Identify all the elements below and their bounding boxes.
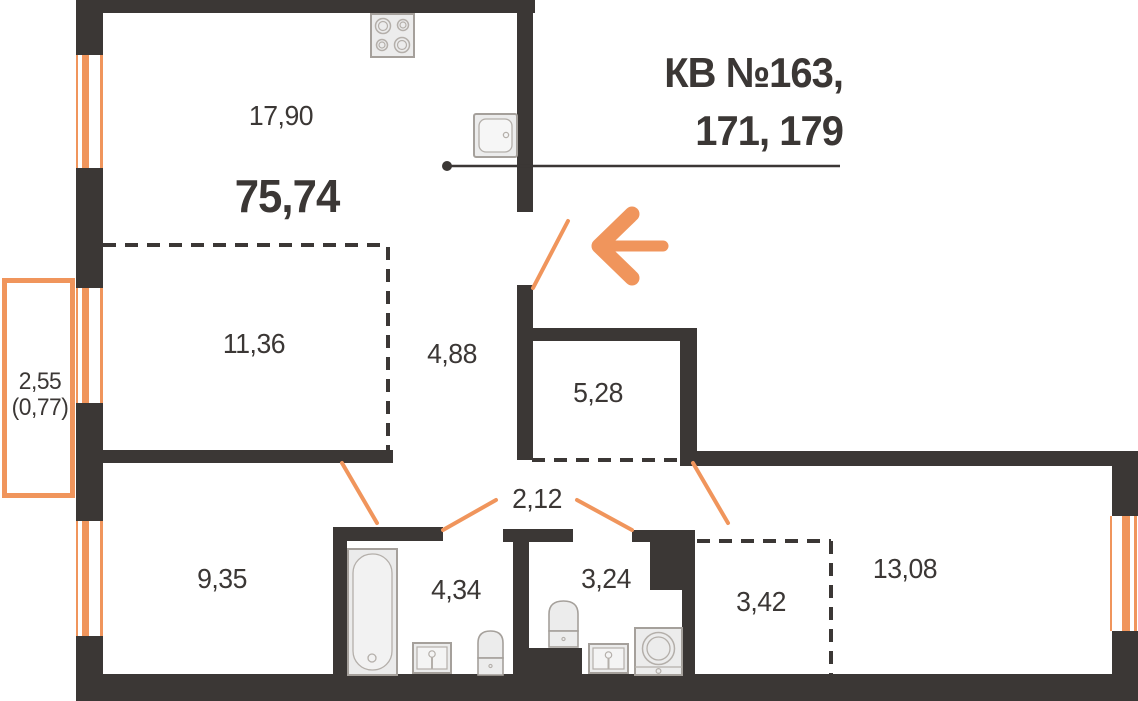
wc-door-leaf (577, 500, 632, 530)
area-label-bathroom: 4,34 (431, 574, 481, 606)
window-bedroom2-frame-outer (76, 521, 78, 636)
bedroom2-door-leaf (342, 463, 377, 523)
window-bedroom2-frame-inner (100, 521, 103, 636)
area-label-bedroom3: 13,08 (873, 553, 937, 585)
area-label-living-kitchen: 17,90 (249, 100, 313, 132)
window-kitchen-frame-sash (82, 55, 89, 168)
entrance-arrow-icon (599, 214, 663, 278)
wall-left-top-block (76, 13, 103, 56)
wall-kitchen-right-lower (517, 285, 533, 460)
bathtub-icon (347, 548, 398, 676)
wall-bathroom-top (337, 527, 443, 541)
wall-wc-bottom-block (529, 648, 582, 675)
window-bedroom3-frame-outer (1134, 516, 1137, 631)
balcony-area-value: 2,55 (19, 368, 61, 395)
wall-bedroom1-bottom (103, 450, 393, 463)
wall-pantry-right (680, 341, 697, 453)
window-kitchen-frame-inner (100, 55, 103, 168)
wc-toilet-icon (548, 600, 579, 648)
total-area-label: 75,74 (235, 169, 340, 223)
area-label-wardrobe: 3,42 (736, 586, 786, 618)
window-bedroom1-frame-inner (100, 288, 103, 403)
wall-wc-right (682, 542, 695, 677)
apartment-title: КВ №163, 171, 179 (558, 44, 843, 160)
window-bedroom3-frame-sash (1122, 516, 1130, 631)
wall-left-mid-1 (76, 168, 103, 288)
window-bedroom3-frame-inner (1110, 516, 1112, 631)
leader-dot (442, 161, 452, 171)
window-bedroom2 (76, 521, 103, 636)
bathroom-door-leaf (443, 500, 496, 530)
wall-right-top (1112, 466, 1138, 516)
area-label-pantry: 5,28 (573, 377, 623, 409)
entry-door-leaf (533, 221, 568, 288)
window-bedroom1 (76, 288, 103, 403)
wall-kitchen-right-upper (517, 0, 533, 212)
wall-top (76, 0, 535, 13)
balcony-area-reduced: (0,77) (12, 394, 69, 421)
apartment-title-line2: 171, 179 (695, 107, 843, 154)
stove-icon (370, 13, 415, 58)
washing-machine-icon (634, 627, 683, 676)
area-label-bedroom2: 9,35 (197, 563, 247, 595)
bathroom-sink-icon (412, 642, 452, 674)
window-kitchen (76, 55, 103, 168)
wall-bedroom3-top (680, 451, 1138, 466)
window-bedroom2-frame-sash (82, 521, 89, 636)
window-kitchen-frame-outer (76, 55, 78, 168)
area-label-bedroom1: 11,36 (223, 328, 285, 360)
balcony-area-label: 2,55 (0,77) (12, 369, 69, 421)
window-bedroom1-frame-outer (76, 288, 78, 403)
bathroom-toilet-icon (477, 630, 504, 676)
bedroom3-door-leaf (693, 463, 728, 523)
apartment-title-line1: КВ №163, (664, 49, 843, 96)
area-label-hallway: 4,88 (427, 338, 477, 370)
wall-corridor-bottom-right (632, 530, 695, 542)
area-label-corridor: 2,12 (512, 483, 562, 515)
wall-bath-wc-divider (513, 542, 529, 677)
wall-bathroom-left (333, 527, 347, 677)
floor-plan: КВ №163, 171, 179 17,90 75,74 11,36 4,88… (0, 0, 1138, 701)
wall-corridor-bottom-mid (503, 529, 573, 542)
wall-wc-shaft-block (650, 542, 682, 590)
area-label-wc: 3,24 (581, 563, 631, 595)
wall-left-mid-2 (76, 403, 103, 521)
window-bedroom1-frame-sash (82, 288, 89, 403)
wall-bottom (76, 674, 1138, 701)
wall-pantry-top (532, 328, 697, 341)
wc-sink-icon (588, 643, 629, 674)
kitchen-sink-icon (473, 113, 518, 158)
